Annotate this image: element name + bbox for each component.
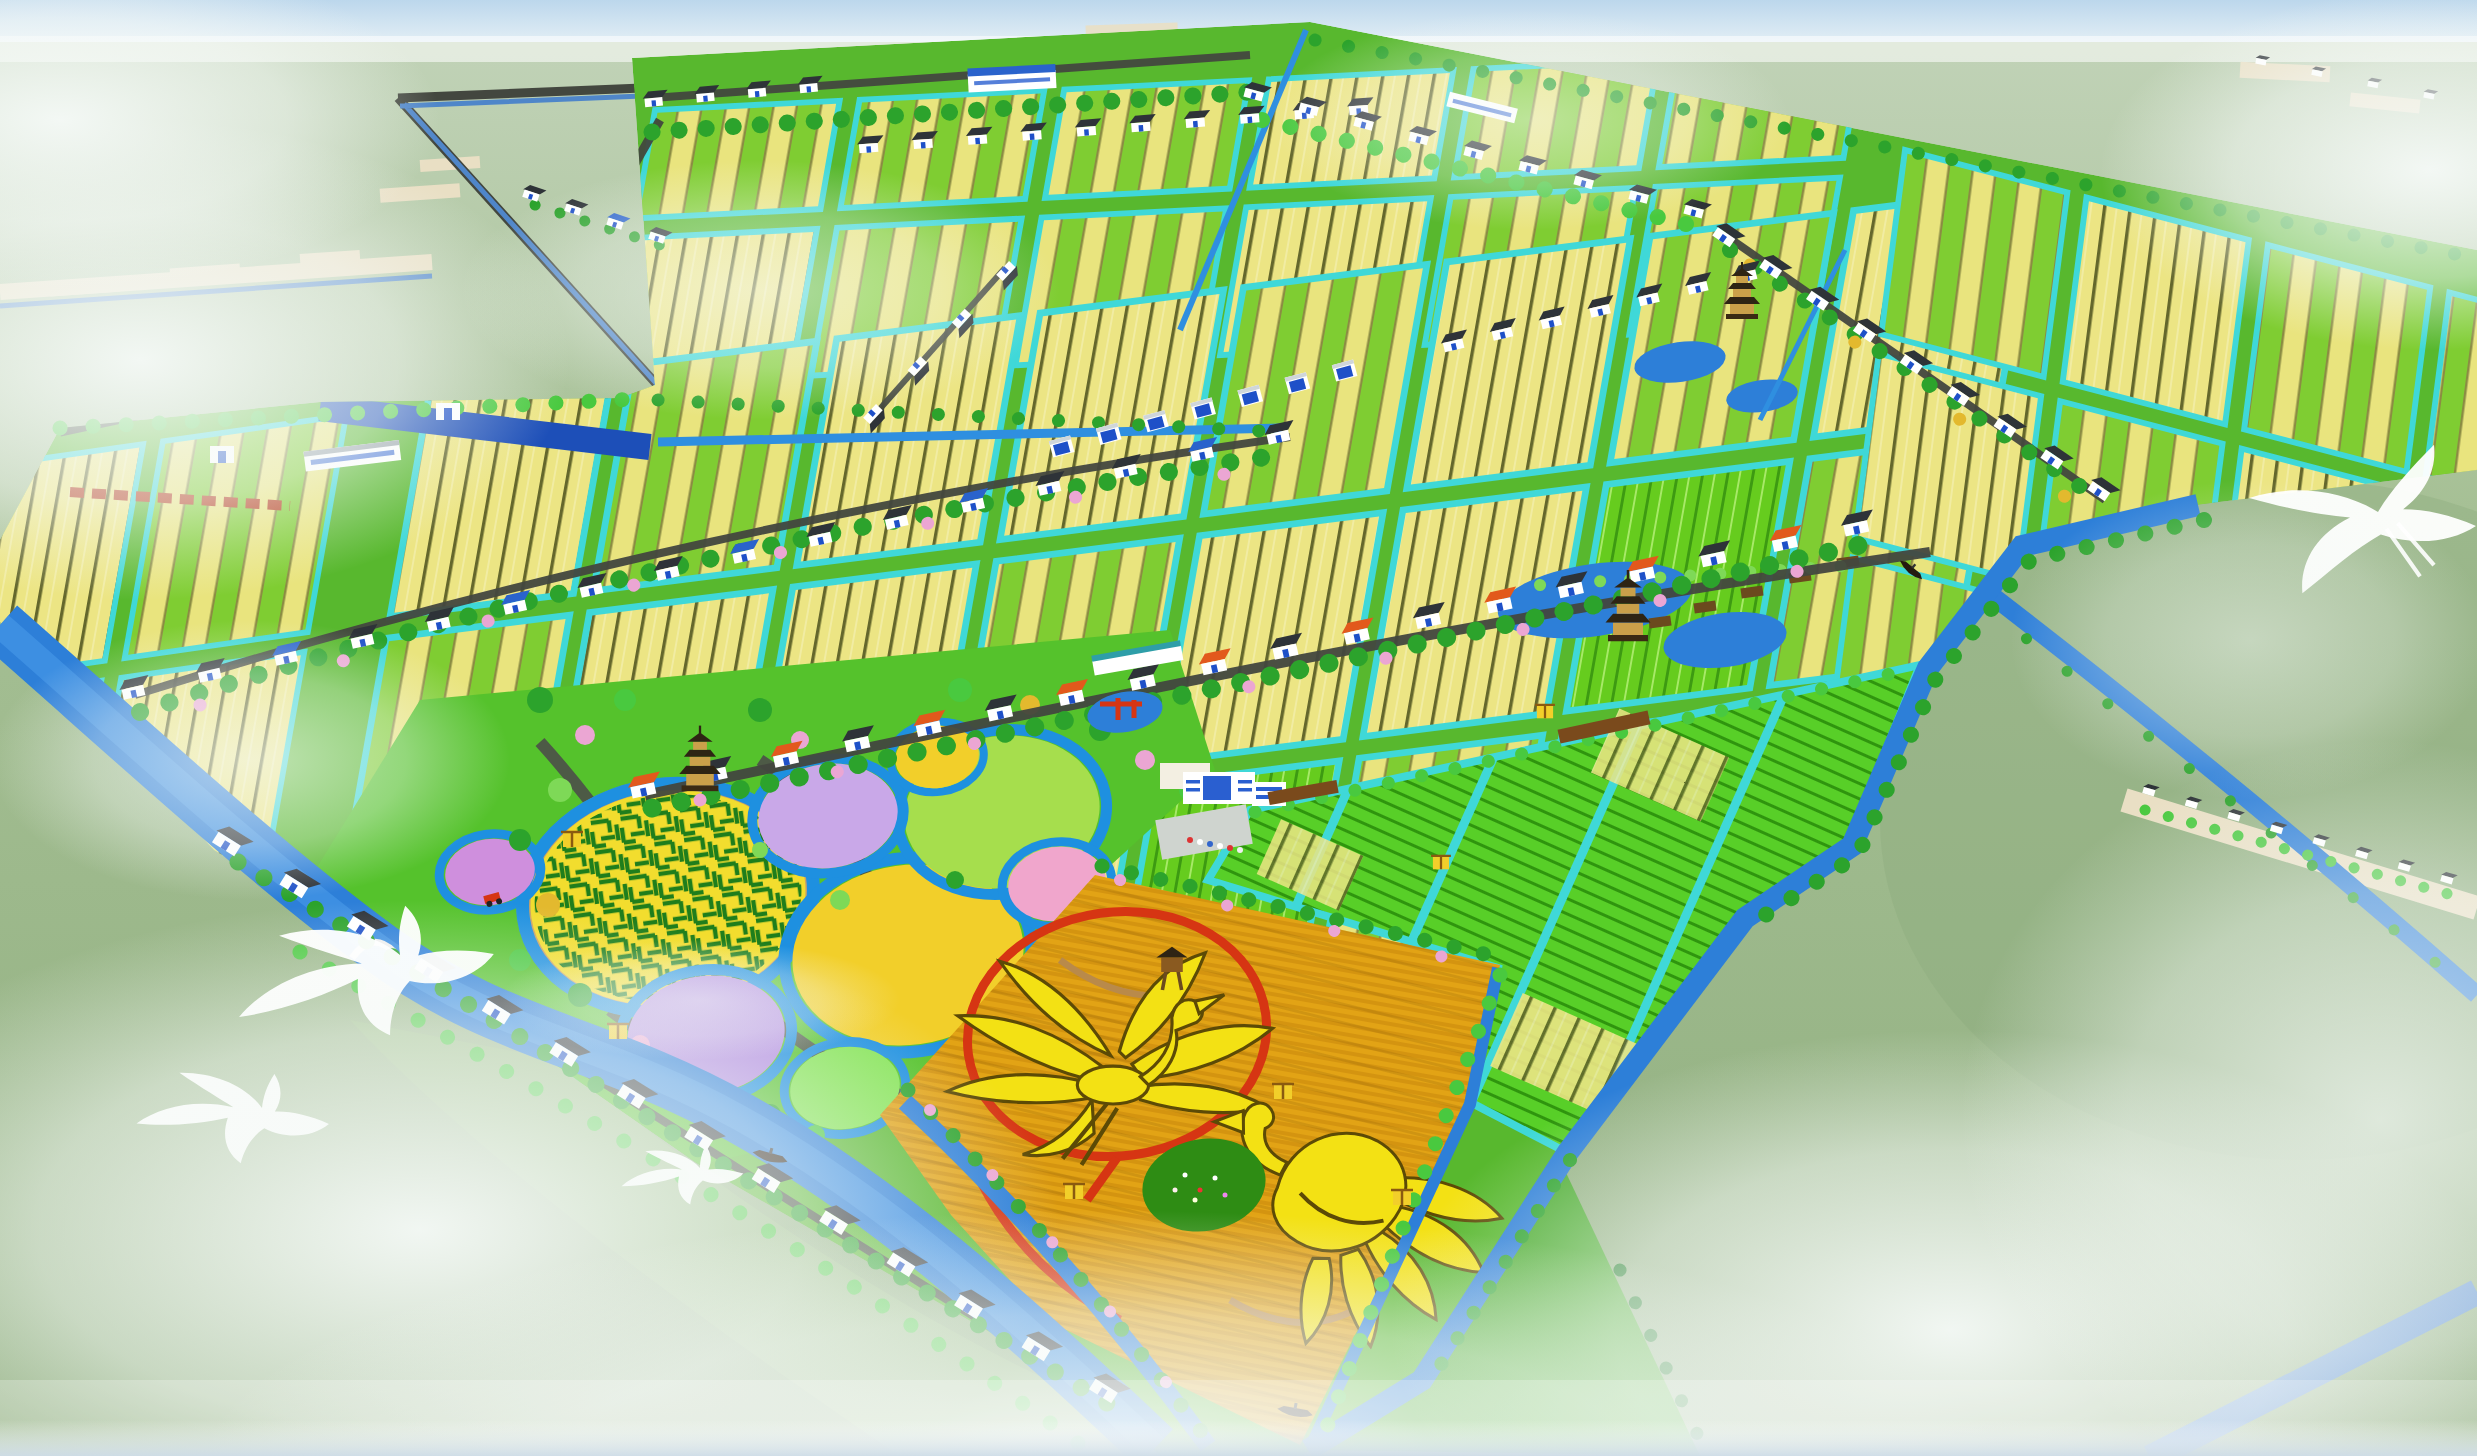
pavilion bbox=[1063, 1184, 1085, 1199]
pavilion bbox=[1535, 705, 1555, 719]
masterplan-aerial-render bbox=[0, 0, 2477, 1456]
render-canvas bbox=[0, 0, 2477, 1456]
pavilion bbox=[1272, 1084, 1294, 1099]
pavilion bbox=[561, 832, 583, 847]
pavilion bbox=[1391, 1190, 1413, 1205]
blue-roof-building bbox=[967, 64, 1056, 93]
pavilion bbox=[1431, 856, 1451, 870]
